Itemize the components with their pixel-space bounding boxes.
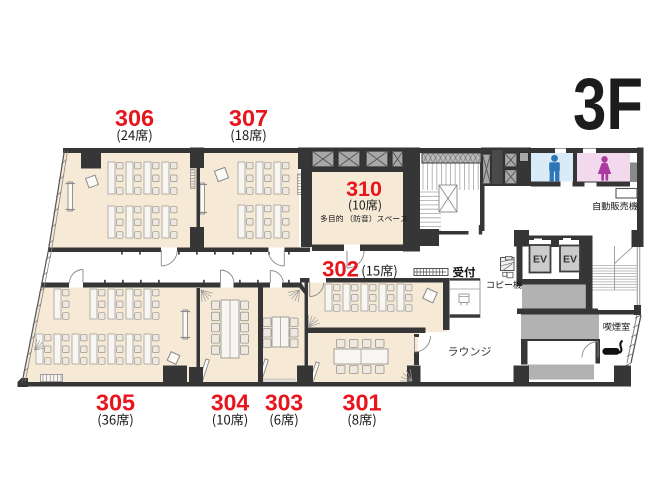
- svg-text:301: 301: [342, 390, 381, 416]
- svg-text:310: 310: [346, 177, 382, 201]
- svg-text:304: 304: [211, 390, 250, 416]
- svg-text:305: 305: [96, 390, 135, 416]
- svg-text:EV: EV: [563, 254, 577, 266]
- svg-text:303: 303: [265, 390, 303, 416]
- svg-text:307: 307: [229, 105, 268, 131]
- svg-text:EV: EV: [533, 254, 547, 266]
- svg-text:3F: 3F: [573, 64, 643, 145]
- svg-text:302: 302: [322, 257, 359, 282]
- svg-text:306: 306: [115, 105, 154, 131]
